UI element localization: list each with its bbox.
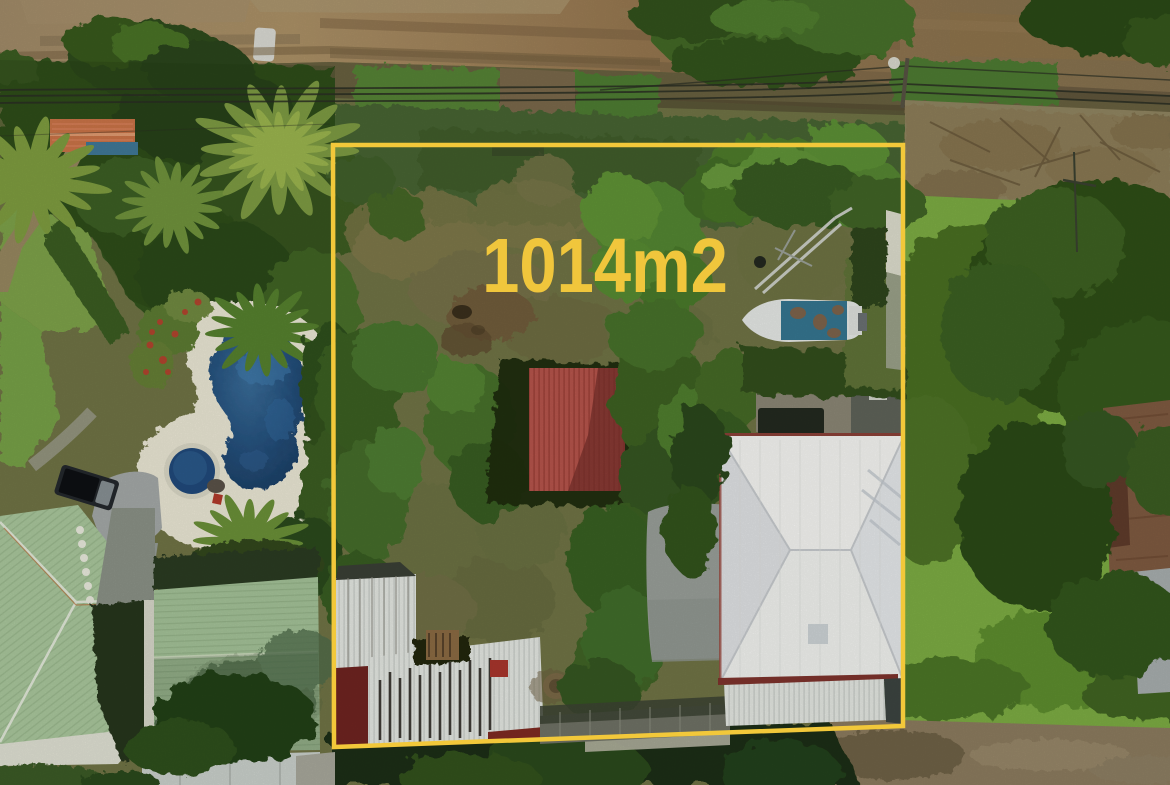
svg-text:1014m2: 1014m2: [482, 224, 728, 309]
